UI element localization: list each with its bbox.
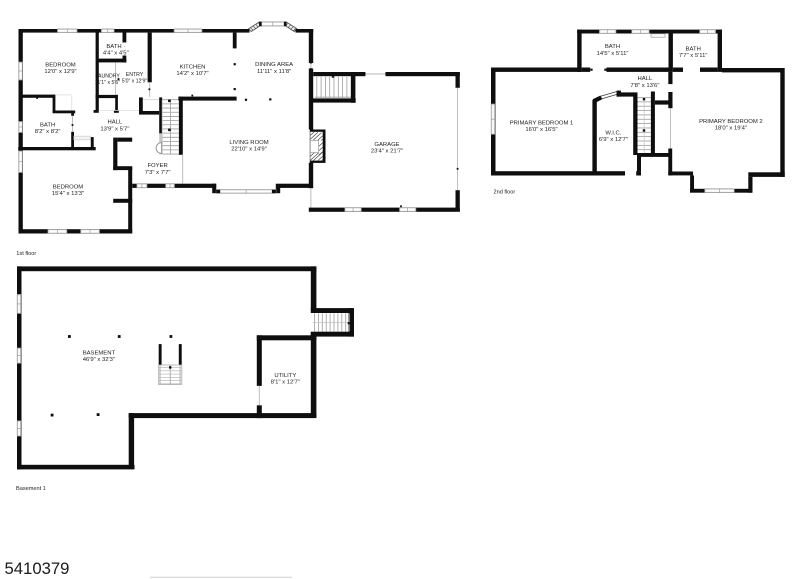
svg-text:18'0" x 19'4": 18'0" x 19'4" — [715, 125, 747, 131]
svg-text:7'8" x 13'6": 7'8" x 13'6" — [630, 83, 659, 89]
svg-text:KITCHEN: KITCHEN — [180, 65, 206, 71]
svg-text:14'5" x 5'11": 14'5" x 5'11" — [597, 51, 629, 57]
svg-text:1st floor: 1st floor — [16, 251, 36, 257]
svg-text:BASEMENT: BASEMENT — [83, 350, 116, 356]
svg-text:Basement 1: Basement 1 — [16, 486, 46, 492]
svg-text:15'4" x 13'3": 15'4" x 13'3" — [52, 191, 84, 197]
svg-text:11'1" x 5'6": 11'1" x 5'6" — [95, 80, 120, 86]
svg-text:BEDROOM: BEDROOM — [45, 62, 76, 68]
svg-text:HALL: HALL — [108, 120, 123, 126]
svg-text:HALL: HALL — [638, 76, 653, 82]
svg-text:7'3" x 7'7": 7'3" x 7'7" — [145, 170, 171, 176]
svg-text:16'0" x 16'5": 16'0" x 16'5" — [525, 127, 557, 133]
svg-text:DINING AREA: DINING AREA — [255, 62, 293, 68]
svg-text:PRIMARY BEDROOM 1: PRIMARY BEDROOM 1 — [510, 121, 574, 127]
svg-text:W.I.C.: W.I.C. — [605, 131, 621, 137]
svg-text:8'2" x 8'2": 8'2" x 8'2" — [35, 129, 61, 135]
svg-text:UTILITY: UTILITY — [274, 373, 296, 379]
svg-text:13'9" x 5'7": 13'9" x 5'7" — [100, 126, 129, 132]
svg-text:22'10" x 14'9": 22'10" x 14'9" — [231, 146, 267, 152]
svg-text:FOYER: FOYER — [147, 163, 167, 169]
svg-text:5'0" x 12'9": 5'0" x 12'9" — [122, 78, 148, 84]
svg-text:LAUNDRY: LAUNDRY — [95, 73, 120, 79]
svg-text:PRIMARY BEDROOM 2: PRIMARY BEDROOM 2 — [699, 119, 763, 125]
svg-text:ENTRY: ENTRY — [126, 72, 144, 78]
svg-text:8'1" x 12'7": 8'1" x 12'7" — [271, 379, 300, 385]
svg-text:LIVING ROOM: LIVING ROOM — [229, 140, 268, 146]
svg-text:14'2" x 10'7": 14'2" x 10'7" — [176, 71, 208, 77]
svg-text:BATH: BATH — [40, 123, 55, 129]
svg-text:BATH: BATH — [605, 44, 620, 50]
svg-text:11'11" x 11'8": 11'11" x 11'8" — [257, 69, 291, 75]
svg-text:GARAGE: GARAGE — [374, 142, 399, 148]
svg-text:46'9" x 32'3": 46'9" x 32'3" — [83, 357, 115, 363]
svg-text:12'0" x 12'9": 12'0" x 12'9" — [44, 69, 76, 75]
svg-text:BATH: BATH — [686, 47, 701, 53]
svg-text:6'9" x 12'7": 6'9" x 12'7" — [599, 137, 628, 143]
svg-text:BEDROOM: BEDROOM — [53, 184, 84, 190]
svg-text:2nd floor: 2nd floor — [494, 190, 516, 196]
svg-text:4'4" x 4'5": 4'4" x 4'5" — [103, 50, 129, 56]
svg-text:23'4" x 21'7": 23'4" x 21'7" — [371, 148, 403, 154]
svg-text:5410379: 5410379 — [5, 559, 70, 578]
svg-text:BATH ·: BATH · — [106, 44, 125, 50]
svg-text:7'7" x 5'11": 7'7" x 5'11" — [679, 53, 708, 59]
